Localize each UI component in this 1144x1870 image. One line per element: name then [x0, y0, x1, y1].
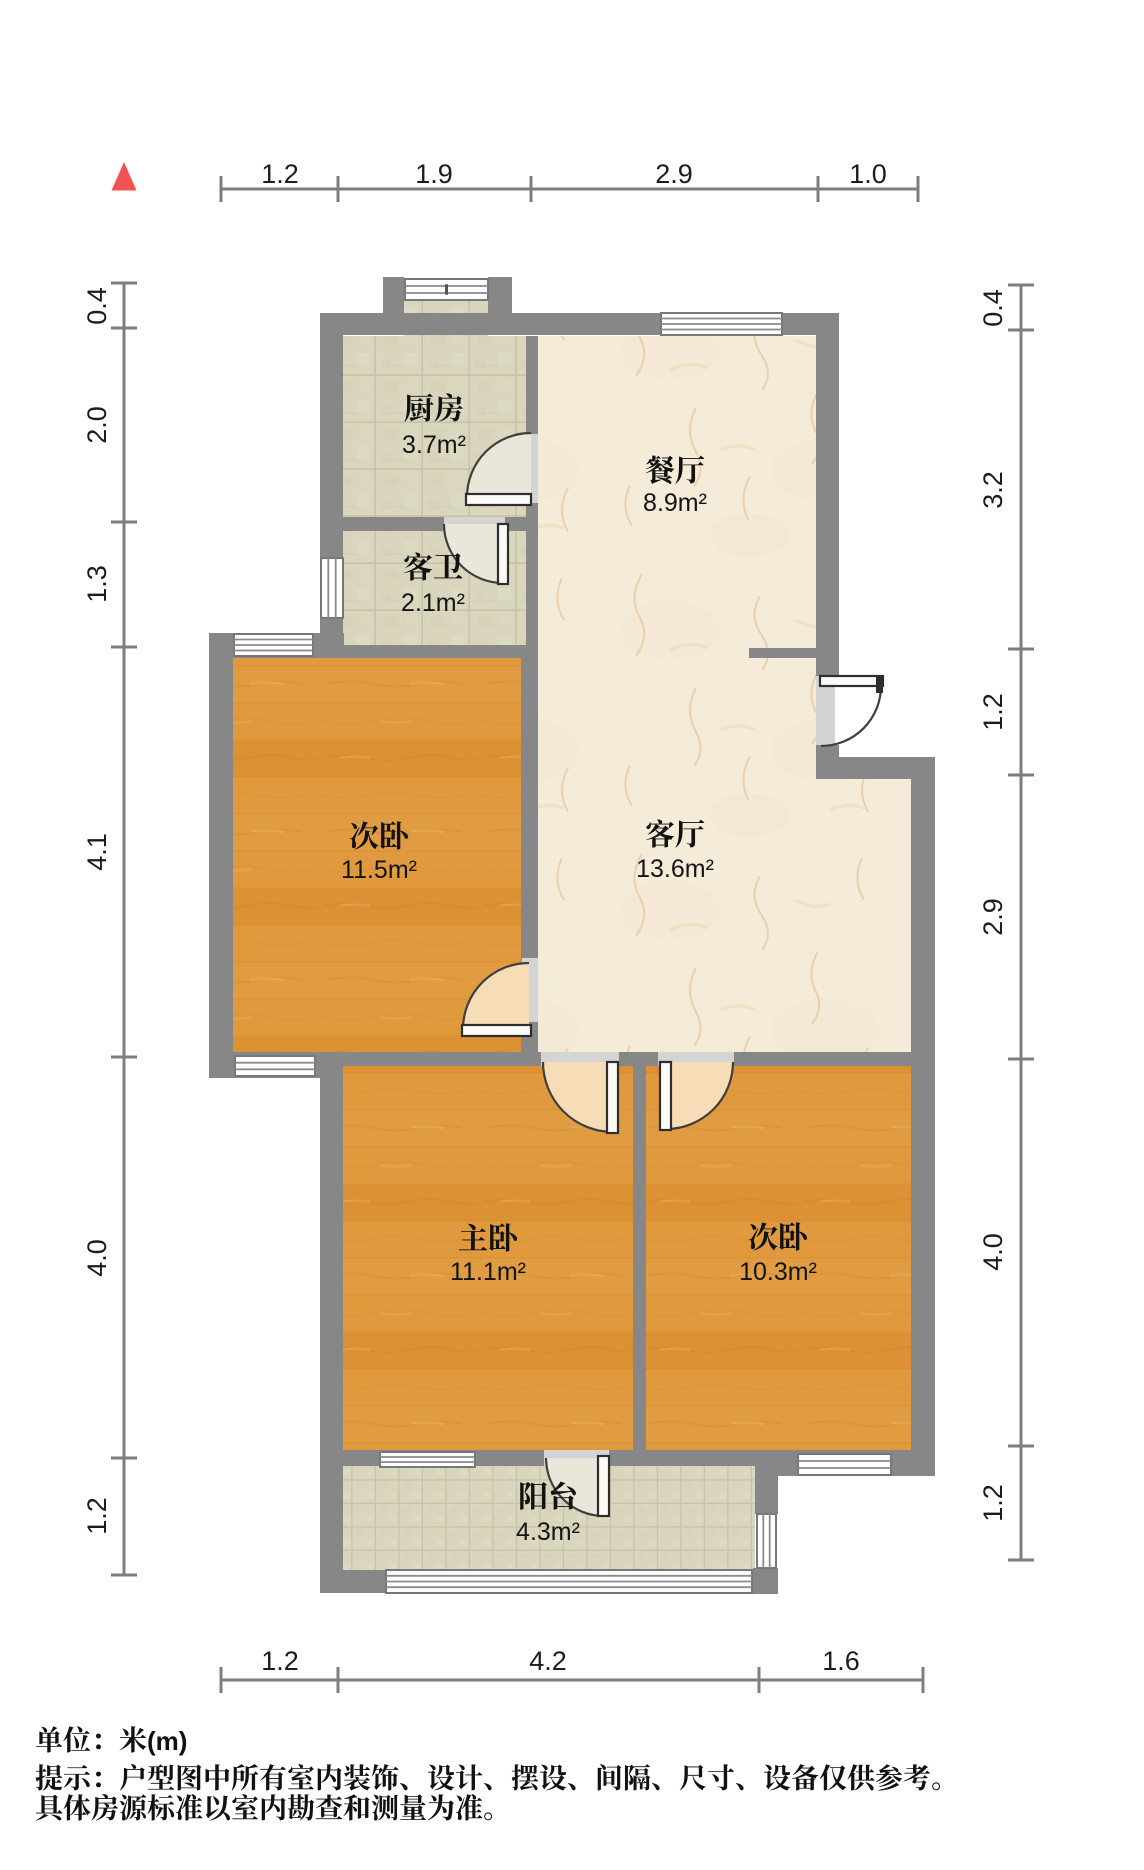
svg-text:4.2: 4.2	[529, 1646, 567, 1676]
svg-text:1.2: 1.2	[261, 159, 299, 189]
svg-text:1.0: 1.0	[849, 159, 887, 189]
svg-text:2.1m²: 2.1m²	[401, 589, 465, 617]
svg-text:1.2: 1.2	[82, 1497, 112, 1535]
svg-text:1.2: 1.2	[978, 693, 1008, 731]
svg-text:8.9m²: 8.9m²	[643, 489, 707, 517]
svg-text:1.3: 1.3	[82, 565, 112, 603]
svg-text:3.7m²: 3.7m²	[402, 431, 466, 459]
svg-text:4.1: 4.1	[82, 833, 112, 871]
svg-text:1.9: 1.9	[415, 159, 453, 189]
svg-text:3.2: 3.2	[978, 471, 1008, 509]
svg-text:4.3m²: 4.3m²	[516, 1518, 580, 1546]
svg-text:4.0: 4.0	[82, 1239, 112, 1277]
svg-text:1.2: 1.2	[261, 1646, 299, 1676]
svg-text:11.5m²: 11.5m²	[341, 856, 417, 884]
svg-text:10.3m²: 10.3m²	[739, 1258, 817, 1286]
svg-text:2.0: 2.0	[82, 406, 112, 444]
svg-text:0.4: 0.4	[82, 287, 112, 325]
svg-text:1.6: 1.6	[822, 1646, 860, 1676]
svg-text:2.9: 2.9	[978, 898, 1008, 936]
svg-text:(m): (m)	[147, 1726, 187, 1756]
svg-text:4.0: 4.0	[978, 1233, 1008, 1271]
svg-text:13.6m²: 13.6m²	[636, 855, 714, 883]
svg-text:11.1m²: 11.1m²	[450, 1258, 526, 1286]
svg-text:2.9: 2.9	[655, 159, 693, 189]
svg-text:0.4: 0.4	[978, 289, 1008, 327]
svg-text:1.2: 1.2	[978, 1484, 1008, 1522]
